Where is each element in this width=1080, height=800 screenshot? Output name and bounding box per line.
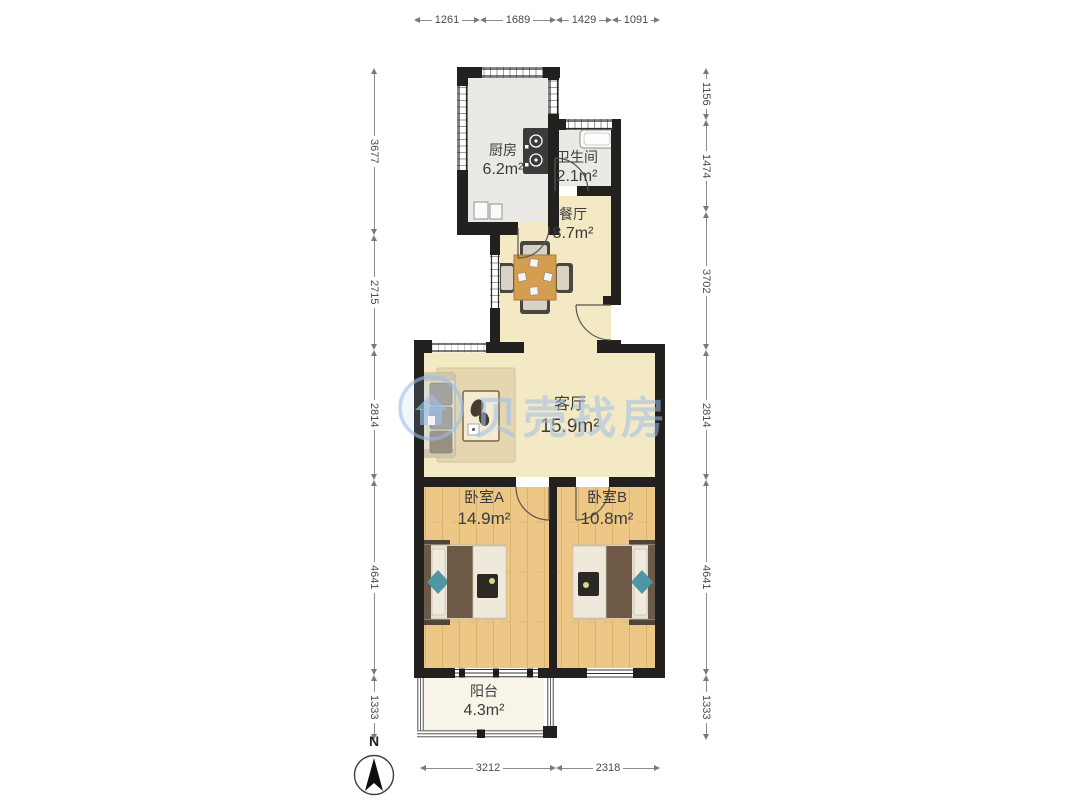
kitchen-top-window	[482, 68, 543, 78]
bedroom-b-bottom-window	[587, 669, 633, 678]
dim-left-0: 3677	[368, 68, 380, 235]
dim-left-4: 1333	[368, 675, 380, 740]
kitchen-left-window	[458, 86, 468, 170]
bathroom-sink-icon	[580, 130, 614, 148]
dim-right-4: 4641	[700, 480, 712, 675]
bathroom-top-window	[566, 120, 612, 130]
stove-icon	[523, 128, 549, 174]
kitchen-right-window	[549, 80, 559, 114]
dim-bottom-1: 2318	[556, 762, 660, 774]
dim-right-3: 2814	[700, 350, 712, 480]
dim-bottom-0: 3212	[420, 762, 556, 774]
dim-right-1: 1474	[700, 120, 712, 212]
dim-right-5: 1333	[700, 675, 712, 740]
dim-top-3: 1091	[612, 14, 660, 26]
dim-top-0: 1261	[414, 14, 480, 26]
dim-right-2: 3702	[700, 212, 712, 350]
kitchen-cabinet-icon	[474, 202, 502, 219]
bedroom-a-balcony-slider	[455, 669, 538, 678]
bed-b-icon	[573, 540, 655, 625]
dim-top-2: 1429	[556, 14, 612, 26]
compass-needle-icon	[365, 758, 383, 791]
living-top-window	[432, 343, 486, 353]
watermark-logo-icon	[400, 377, 462, 439]
compass-icon	[355, 756, 394, 795]
floorplan-canvas: 厨房 6.2m² 卫生间 2.1m² 餐厅 8.7m² 客厅 15.9m² 卧室…	[0, 0, 1080, 800]
dim-left-2: 2814	[368, 350, 380, 480]
bed-a-icon	[424, 540, 506, 625]
dim-left-3: 4641	[368, 480, 380, 675]
dim-right-0: 1156	[700, 68, 712, 120]
dim-left-1: 2715	[368, 235, 380, 350]
watermark-text: 贝壳找房	[474, 382, 670, 446]
dim-top-1: 1689	[480, 14, 556, 26]
compass-north-label: N	[366, 733, 382, 749]
dining-left-window	[490, 255, 500, 308]
